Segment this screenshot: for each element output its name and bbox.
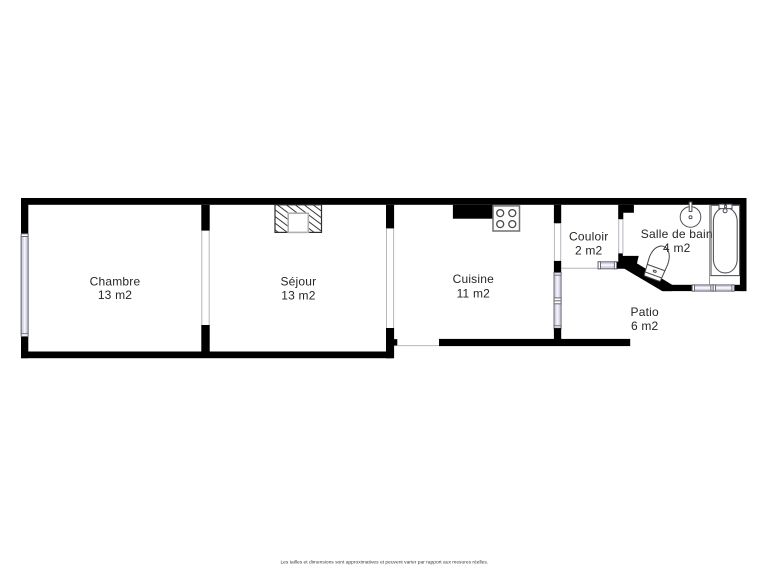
svg-text:Les tailles et dimensions sont: Les tailles et dimensions sont approxima… — [280, 559, 488, 565]
svg-text:4 m2: 4 m2 — [663, 241, 691, 255]
svg-text:13 m2: 13 m2 — [98, 288, 132, 302]
svg-text:11 m2: 11 m2 — [457, 286, 491, 300]
svg-text:6 m2: 6 m2 — [631, 319, 659, 333]
svg-text:Cuisine: Cuisine — [453, 272, 495, 286]
svg-text:13 m2: 13 m2 — [281, 288, 315, 302]
svg-text:Couloir: Couloir — [569, 229, 608, 243]
svg-text:Patio: Patio — [631, 305, 659, 319]
svg-text:2 m2: 2 m2 — [575, 243, 603, 257]
svg-text:Salle de bain: Salle de bain — [641, 227, 713, 241]
svg-text:Séjour: Séjour — [280, 275, 316, 289]
svg-text:Chambre: Chambre — [90, 274, 141, 288]
